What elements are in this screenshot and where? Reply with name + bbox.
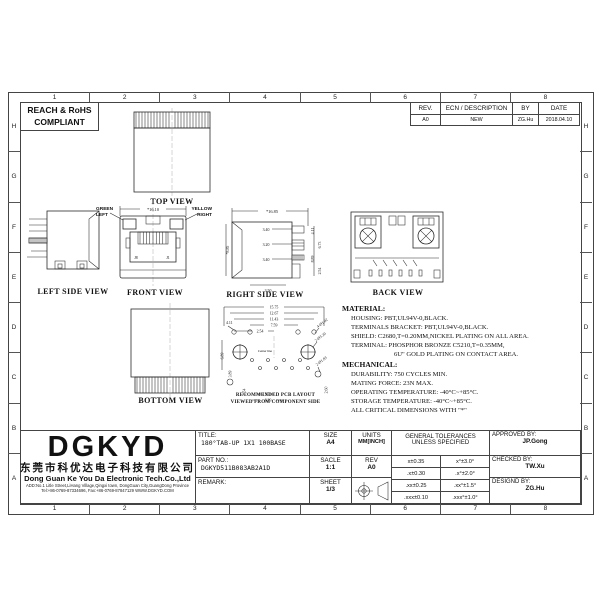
grid-row-label: F (580, 202, 592, 252)
tolerance-angular-value: .xx°±1.5° (441, 480, 490, 492)
grid-col-label: 6 (370, 503, 440, 514)
grid-col-label: 7 (440, 503, 510, 514)
revision-header-cell: REV. (411, 102, 441, 115)
company-contact: Tel:+86-0769-87334696, Fax:+86-0769-8784… (20, 488, 195, 493)
back-view-drawing (345, 202, 450, 292)
top-view-drawing (120, 108, 225, 200)
remark-cell: REMARK: (196, 478, 310, 504)
material-line: TERMINALS BRACKET: PBT,UL94V-0,BLACK. (351, 323, 582, 332)
yellow-led (170, 219, 183, 229)
front-green-label-1: GREEN (96, 206, 114, 212)
rev-cell: REV A0 (352, 456, 392, 478)
grid-col-label: 8 (510, 503, 580, 514)
grid-row-label: G (580, 151, 592, 201)
units-label: UNITS (352, 431, 391, 439)
mechanical-line: STORAGE TEMPERATURE: -40°C~+85°C. (351, 397, 582, 406)
compliance-line2: COMPLIANT (21, 116, 98, 128)
grid-row-label: E (580, 252, 592, 302)
sheet-cell: SHEET 1/3 (310, 478, 352, 504)
tolerance-angular-value: .xxx°±1.0° (441, 492, 490, 504)
tolerance-angular-value: .x°±2.0° (441, 468, 490, 480)
checked-by-cell: CHECKED BY: TW.Xu (490, 456, 581, 478)
tolerance-angular-value: x°±3.0° (441, 456, 490, 468)
grid-col-label: 3 (159, 92, 229, 103)
tolerances-header-cell: GENERAL TOLERANCES UNLESS SPECIFIED (392, 430, 490, 456)
revision-header-cell: DATE (539, 102, 580, 115)
grid-row-label: C (8, 352, 20, 402)
right-dim-r3: 8.89 (311, 256, 315, 263)
units-cell: UNITS MM[INCH] (352, 430, 392, 456)
rev-value: A0 (352, 464, 391, 471)
grid-row-label: G (8, 151, 20, 201)
front-j8-label: J8 (134, 256, 138, 260)
title-block: DGKYD 东莞市科优达电子科技有限公司 Dong Guan Ke You Da… (20, 430, 581, 504)
title-cell: TITLE: 180°TAB-UP 1X1 100BASE (196, 430, 310, 456)
checked-by-label: CHECKED BY: (490, 456, 580, 463)
mechanical-notes: MECHANICAL: DURABILITY: 750 CYCLES MIN.M… (342, 360, 582, 415)
tolerance-linear-value: .xxx±0.10 (392, 492, 441, 504)
designed-by-cell: DESIGND BY: ZG.Hu (490, 478, 581, 504)
right-dim-d3: 3.40 (263, 258, 270, 262)
right-side-view-drawing: *16.85 3.40 3.20 3.40 4.11 6.73 8.89 2.5… (222, 200, 327, 295)
right-dim-r4: 2.54 (318, 268, 322, 275)
scale-value: 1:1 (310, 464, 351, 471)
approved-by-label: APPROVED BY: (490, 431, 580, 438)
right-dim-d2: 3.20 (263, 243, 270, 247)
bottom-view-caption: BOTTOM VIEW (118, 396, 223, 405)
pcb-center-label: Center line (258, 349, 273, 353)
front-yellow-label-2: RIGHT (197, 212, 212, 218)
company-cell: DGKYD 东莞市科优达电子科技有限公司 Dong Guan Ke You Da… (20, 430, 196, 504)
revision-data-cell: ZG.Hu (513, 115, 539, 126)
sheet-label: SHEET (310, 478, 351, 486)
grid-row-label: D (8, 302, 20, 352)
green-led (123, 219, 136, 229)
title-value: 180°TAB-UP 1X1 100BASE (196, 439, 309, 447)
compliance-line1: REACH & RoHS (21, 104, 98, 116)
right-dim-r1: 4.11 (311, 228, 315, 235)
right-side-view-caption: RIGHT SIDE VIEW (210, 290, 320, 299)
front-width-dim: *16.10 (147, 207, 160, 212)
grid-col-label: 2 (89, 92, 159, 103)
mechanical-line: OPERATING TEMPERATURE: -40°C~+85°C. (351, 388, 582, 397)
size-value: A4 (310, 439, 351, 446)
pcb-dim-l3: 3.89 (229, 371, 233, 378)
front-green-label-2: LEFT (96, 212, 108, 218)
pcb-layout-drawing: 15.75 12.67 11.43 7.59 2.54 Center line … (218, 300, 338, 405)
designed-by-label: DESIGND BY: (490, 478, 580, 485)
right-dim-d1: 3.40 (263, 228, 270, 232)
grid-col-label: 5 (300, 92, 370, 103)
material-line: HOUSING: PBT,UL94V-0,BLACK. (351, 314, 582, 323)
scale-label: SACLE (310, 456, 351, 464)
grid-col-label: 4 (229, 92, 299, 103)
revision-data-cell: 2018.04.10 (539, 115, 580, 126)
revision-data-cell: A0 (411, 115, 441, 126)
tolerance-linear-value: x±0.35 (392, 456, 441, 468)
sheet-value: 1/3 (310, 486, 351, 493)
mechanical-line: DURABILITY: 750 CYCLES MIN. (351, 370, 582, 379)
revision-header-cell: BY (513, 102, 539, 115)
tolerances-header-line1: GENERAL TOLERANCES (392, 431, 489, 440)
part-no-cell: PART NO.: DGKYD511B083AB2A1D (196, 456, 310, 478)
pcb-dim-w3: 11.43 (270, 318, 279, 322)
pcb-callout-small-holes: 4-Ø1.02 (316, 318, 329, 329)
grid-ruler-right: HGFEDCBA (580, 102, 592, 503)
grid-col-label: 3 (159, 503, 229, 514)
approved-by-value: JP.Gong (490, 438, 580, 445)
grid-row-label: B (8, 403, 20, 453)
company-logo: DGKYD (20, 432, 195, 462)
material-line: 6U" GOLD PLATING ON CONTACT AREA. (394, 350, 582, 359)
bottom-view-drawing (115, 303, 225, 403)
pcb-caption-line2: VIEWED FROM COMPONENT SIDE (213, 400, 338, 407)
back-view-caption: BACK VIEW (348, 288, 448, 297)
right-width-dim: *16.85 (266, 209, 279, 214)
front-view-drawing: GREEN LEFT YELLOW RIGHT *16.10 J8 J1 (88, 200, 213, 290)
size-cell: SIZE A4 (310, 430, 352, 456)
remark-label: REMARK: (196, 478, 309, 486)
tolerance-linear-value: .xx±0.25 (392, 480, 441, 492)
right-height-dim: *8.85 (226, 246, 230, 255)
mechanical-title: MECHANICAL: (342, 360, 582, 369)
pcb-dim-w5: 2.54 (257, 330, 264, 334)
material-line: SHIELD: C2680,T=0.20MM,NICKEL PLATING ON… (351, 332, 582, 341)
tolerance-linear-value: .x±0.30 (392, 468, 441, 480)
grid-col-label: 4 (229, 503, 299, 514)
pcb-callout-ground-holes: 2-Ø1.83 (315, 356, 328, 367)
drawing-sheet: 12345678 12345678 HGFEDCBA HGFEDCBA REAC… (0, 0, 600, 600)
checked-by-value: TW.Xu (490, 463, 580, 470)
approved-by-cell: APPROVED BY: JP.Gong (490, 430, 581, 456)
revision-header-cell: ECN / DESCRIPTION (441, 102, 513, 115)
material-lines: HOUSING: PBT,UL94V-0,BLACK.TERMINALS BRA… (342, 314, 582, 359)
pcb-caption: RECOMMENDED PCB LAYOUT VIEWED FROM COMPO… (213, 393, 338, 406)
grid-col-label: 2 (89, 503, 159, 514)
mechanical-line: MATING FORCE: 23N MAX. (351, 379, 582, 388)
grid-row-label: A (580, 453, 592, 503)
grid-ruler-left: HGFEDCBA (8, 102, 20, 503)
grid-row-label: H (8, 102, 20, 151)
mechanical-lines: DURABILITY: 750 CYCLES MIN.MATING FORCE:… (342, 370, 582, 415)
compliance-badge: REACH & RoHS COMPLIANT (20, 102, 99, 131)
front-view-caption: FRONT VIEW (105, 288, 205, 297)
pcb-dim-l2: 6.89 (221, 353, 225, 360)
part-no-label: PART NO.: (196, 456, 309, 464)
grid-row-label: A (8, 453, 20, 503)
part-no-value: DGKYD511B083AB2A1D (196, 464, 309, 472)
grid-row-label: F (8, 202, 20, 252)
pcb-dim-w4: 7.59 (271, 324, 278, 328)
mechanical-line: ALL CRITICAL DIMENSIONS WITH "*" (351, 406, 582, 415)
material-title: MATERIAL: (342, 304, 582, 313)
pcb-dim-w1: 15.75 (270, 306, 279, 310)
front-yellow-label-1: YELLOW (191, 206, 212, 212)
company-name-english: Dong Guan Ke You Da Electronic Tech.Co.,… (20, 474, 195, 483)
right-dim-r2: 6.73 (318, 242, 322, 249)
grid-ruler-bottom: 12345678 (20, 503, 580, 514)
front-j1-label: J1 (166, 256, 170, 260)
material-notes: MATERIAL: HOUSING: PBT,UL94V-0,BLACK.TER… (342, 304, 582, 359)
rev-label: REV (352, 456, 391, 464)
grid-col-label: 1 (20, 503, 89, 514)
size-label: SIZE (310, 431, 351, 439)
scale-cell: SACLE 1:1 (310, 456, 352, 478)
company-name-chinese: 东莞市科优达电子科技有限公司 (20, 462, 195, 474)
tolerances-table: x±0.35x°±3.0°.x±0.30.x°±2.0°.xx±0.25.xx°… (392, 456, 490, 504)
revision-table: REV.ECN / DESCRIPTIONBYDATEA0NEWZG.Hu201… (410, 102, 582, 126)
third-angle-projection-icon (352, 478, 392, 504)
pcb-dim-l1: 4.11 (226, 321, 233, 325)
revision-data-cell: NEW (441, 115, 513, 126)
title-label: TITLE: (196, 431, 309, 439)
units-value: MM[INCH] (352, 439, 391, 445)
tolerances-header-line2: UNLESS SPECIFIED (392, 440, 489, 446)
projection-symbol-cell (352, 478, 392, 504)
pcb-dim-w2: 12.67 (270, 312, 279, 316)
material-line: TERMINAL: PHOSPHOR BRONZE C5210,T=0.35MM… (351, 341, 582, 350)
grid-col-label: 5 (300, 503, 370, 514)
designed-by-value: ZG.Hu (490, 485, 580, 492)
